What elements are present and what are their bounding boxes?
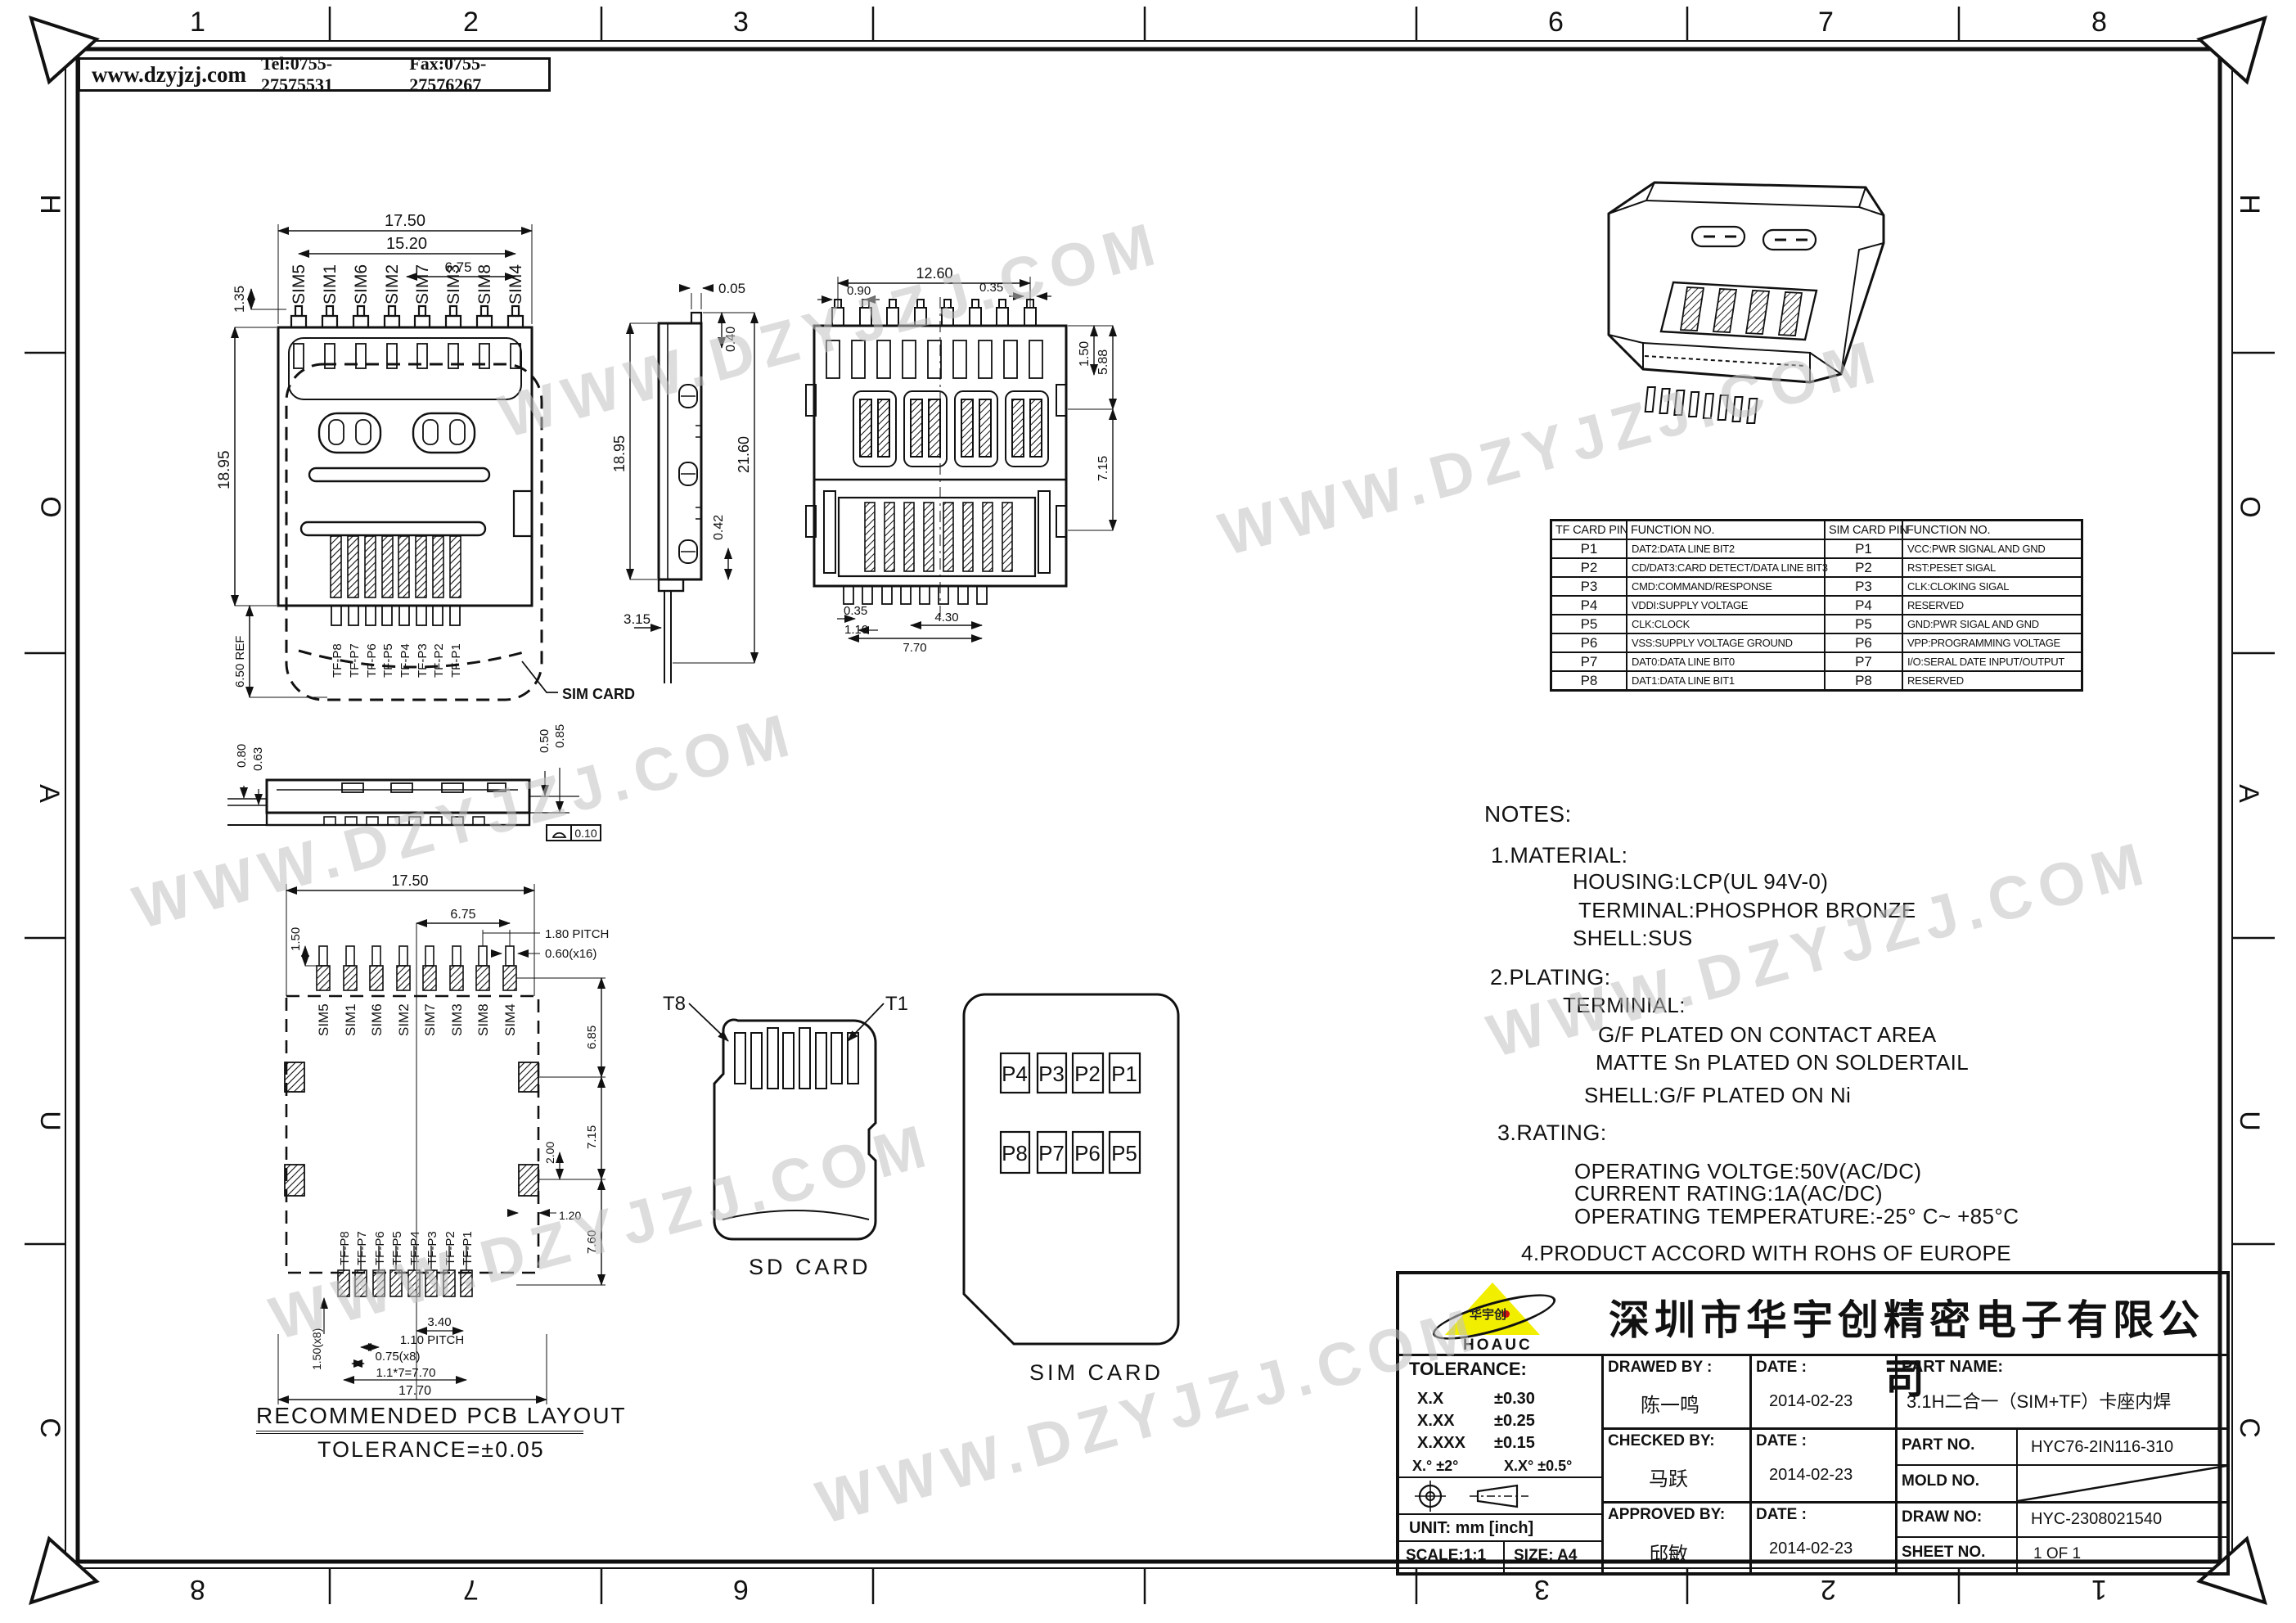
pin-label-sim: SIM3 (444, 264, 463, 304)
sim-pad-label: P8 (1002, 1141, 1028, 1165)
tolerance-row-value: ±0.15 (1494, 1434, 1535, 1453)
tf-pin: P3 (1551, 577, 1627, 596)
dim-label: 1.10 (844, 623, 868, 637)
tolerance-row-value: ±0.25 (1494, 1412, 1535, 1431)
tolerance-angle: X.° ±2° (1412, 1458, 1458, 1475)
zone-number-bottom: 6 (733, 1573, 749, 1605)
dim-label: 1.1*7=7.70 (376, 1366, 436, 1380)
dim-label: 1.50 (289, 927, 303, 951)
sim-pin: P5 (1825, 615, 1902, 633)
pin-label-sim: SIM7 (413, 264, 432, 304)
view-sim-card: P4 P3 P2 P1 P8 P7 P6 P5 (956, 986, 1201, 1371)
draw-no-value: HYC-2308021540 (2031, 1510, 2162, 1529)
note-line: CURRENT RATING:1A(AC/DC) (1574, 1181, 1883, 1206)
note-line: TERMINIAL: (1563, 993, 1686, 1018)
note-line: SHELL:G/F PLATED ON Ni (1584, 1083, 1851, 1108)
note-line: HOUSING:LCP(UL 94V-0) (1573, 869, 1828, 895)
sim-pad-label: P7 (1038, 1141, 1065, 1165)
checked-by-name: 马跃 (1649, 1463, 1688, 1491)
title-block: 华宇创 HOAUC 深圳市华宇创精密电子有限公司 TOLERANCE: X.X … (1396, 1271, 2230, 1576)
zone-number-top: 1 (190, 7, 205, 38)
website: www.dzyjzj.com (92, 62, 246, 88)
dim-label: 0.05 (718, 281, 745, 296)
projection-symbol-target (1414, 1480, 1447, 1513)
notes-title: NOTES: (1484, 801, 1572, 827)
sim-function: I/O:SERAL DATE INPUT/OUTPUT (1902, 652, 2082, 671)
tolerance-row-label: X.XX (1417, 1412, 1455, 1431)
sim-function: RST:PESET SIGAL (1902, 558, 2082, 577)
pin-label-tf: TF-P8 (338, 1231, 352, 1265)
dim-label: 7.70 (903, 641, 926, 655)
pin-label-tf: TF-P7 (355, 1231, 369, 1265)
sim-function: GND:PWR SIGAL AND GND (1902, 615, 2082, 633)
note-line: SHELL:SUS (1573, 926, 1693, 951)
pin-label-sim: SIM4 (506, 264, 525, 304)
note-line: OPERATING TEMPERATURE:-25° C~ +85°C (1574, 1204, 2019, 1229)
pin-label-tf: TF-P4 (408, 1231, 422, 1265)
date-label: DATE : (1756, 1432, 1807, 1450)
dim-label: 0.75(x8) (375, 1350, 420, 1364)
fax: Fax:0755-27576267 (409, 53, 548, 96)
sim-pin: P2 (1825, 558, 1902, 577)
approved-date: 2014-02-23 (1769, 1540, 1853, 1558)
dim-label: 0.80 (235, 744, 249, 768)
zone-letter-right: H (2233, 194, 2265, 214)
mold-no-label: MOLD NO. (1902, 1472, 1979, 1490)
tolerance-angle: X.X° ±0.5° (1504, 1458, 1572, 1475)
drawing-sheet: 1 2 3 6 7 8 8 7 6 3 2 1 H O A U C H O A … (0, 0, 2296, 1623)
tf-pin: P6 (1551, 633, 1627, 652)
pin-label-tf: TF-P6 (373, 1231, 387, 1265)
note-line: G/F PLATED ON CONTACT AREA (1598, 1022, 1936, 1048)
tf-function: DAT0:DATA LINE BIT0 (1627, 652, 1825, 671)
pin-label-tf: TF-P1 (461, 1231, 475, 1265)
sim-pad-label: P2 (1074, 1062, 1101, 1086)
mold-no-diagonal (2018, 1466, 2226, 1501)
pin-label-sim: SIM5 (290, 264, 308, 304)
approved-by-label: APPROVED BY: (1608, 1506, 1725, 1524)
pin-label-sim: SIM5 (316, 1003, 331, 1036)
zone-letter-left: C (34, 1418, 65, 1438)
sim-table-header: SIM CARD PIN (1825, 521, 1902, 539)
dim-label: 4.30 (934, 611, 958, 624)
flatness-value: 0.10 (574, 827, 597, 840)
pin-label-tf: TF-P2 (432, 643, 446, 678)
tf-function: CLK:CLOCK (1627, 615, 1825, 633)
pin-label-tf: TF-P3 (425, 1231, 439, 1265)
tf-function: CD/DAT3:CARD DETECT/DATA LINE BIT3 (1627, 558, 1825, 577)
zone-number-top: 3 (733, 7, 749, 38)
view-isometric (1596, 168, 1923, 446)
dim-label: 0.63 (251, 747, 265, 771)
note-line: TERMINAL:PHOSPHOR BRONZE (1578, 898, 1916, 923)
zone-letter-right: U (2233, 1111, 2265, 1131)
dim-label: 3.40 (427, 1315, 451, 1329)
dim-label: 0.35 (979, 281, 1003, 295)
view-pcb-layout: 17.50 1.50 6.75 1.80 PITCH 0.60(x16) 6.8… (245, 876, 622, 1408)
telephone: Tel:0755-27575531 (261, 53, 394, 96)
dim-label: 0.85 (553, 724, 567, 748)
pcb-layout-title: RECOMMENDED PCB LAYOUT (256, 1403, 583, 1434)
dim-label: 0.50 (538, 729, 551, 753)
dim-label: 7.60 (585, 1230, 599, 1254)
sim-function: VPP:PROGRAMMING VOLTAGE (1902, 633, 2082, 652)
zone-number-top: 6 (1548, 7, 1564, 38)
dim-label: 17.70 (398, 1384, 431, 1398)
pcb-layout-tolerance: TOLERANCE=±0.05 (317, 1437, 545, 1463)
tf-function: DAT2:DATA LINE BIT2 (1627, 539, 1825, 558)
dim-label: 1.50 (1078, 341, 1092, 367)
sim-card-callout: SIM CARD (562, 686, 635, 702)
zone-letter-left: O (34, 496, 66, 517)
draw-no-label: DRAW NO: (1902, 1508, 1982, 1526)
pin-label-tf: TF-P1 (449, 643, 463, 678)
pin-function-tables: TF CARD PIN FUNCTION NO. SIM CARD PIN FU… (1550, 519, 2083, 692)
view-side: 0.05 0.40 18.95 21.60 0.42 3.15 (614, 270, 802, 688)
zone-letter-right: C (2233, 1418, 2265, 1438)
tolerance-title: TOLERANCE: (1409, 1359, 1527, 1380)
dim-label: 6.75 (450, 908, 475, 922)
view-front: 12.60 0.90 0.35 1.50 5.88 7.15 0.35 1.10… (806, 260, 1133, 661)
dim-label: 0.60(x16) (545, 947, 597, 961)
sim-function: CLK:CLOKING SIGAL (1902, 577, 2082, 596)
dim-label: 3.15 (624, 611, 651, 627)
sim-pad-label: P4 (1002, 1062, 1028, 1086)
sd-t1-label: T1 (885, 993, 908, 1015)
dim-label: 1.35 (232, 286, 247, 313)
tolerance-row-label: X.X (1417, 1390, 1443, 1409)
dim-label: 18.95 (611, 435, 628, 472)
sim-pad-label: P3 (1038, 1062, 1065, 1086)
zone-letter-right: A (2232, 784, 2264, 803)
note-line: 1.MATERIAL: (1491, 843, 1627, 868)
pin-label-sim: SIM8 (475, 1003, 491, 1036)
dim-label: 21.60 (736, 436, 752, 473)
header-contact-box: www.dzyjzj.com Tel:0755-27575531 Fax:075… (78, 57, 551, 92)
tf-table-header: TF CARD PIN (1551, 521, 1627, 539)
tolerance-row-value: ±0.30 (1494, 1390, 1535, 1409)
tf-function: VDDI:SUPPLY VOLTAGE (1627, 596, 1825, 615)
sd-t8-label: T8 (663, 993, 686, 1015)
sim-pin: P1 (1825, 539, 1902, 558)
sim-function: RESERVED (1902, 596, 2082, 615)
tf-function: VSS:SUPPLY VOLTAGE GROUND (1627, 633, 1825, 652)
sim-pad-label: P1 (1111, 1062, 1137, 1086)
sim-pad-label: P6 (1074, 1141, 1101, 1165)
dim-label: 0.40 (724, 327, 738, 352)
tf-pin: P7 (1551, 652, 1627, 671)
zone-letter-right: O (2234, 496, 2266, 517)
pin-label-sim: SIM1 (343, 1003, 358, 1036)
part-no-label: PART NO. (1902, 1436, 1974, 1454)
sim-pad-label: P5 (1111, 1141, 1137, 1165)
sd-card-caption: SD CARD (749, 1255, 871, 1280)
pin-label-sim: SIM7 (422, 1003, 438, 1036)
approved-by-name: 邱敏 (1649, 1538, 1688, 1567)
dim-label: 5.88 (1096, 349, 1110, 375)
pin-label-sim: SIM2 (396, 1003, 412, 1036)
pin-label-sim: SIM6 (352, 264, 371, 304)
projection-symbol-cone (1470, 1484, 1528, 1508)
sim-pin: P3 (1825, 577, 1902, 596)
sim-pin: P8 (1825, 671, 1902, 690)
zone-number-bottom: 2 (1821, 1573, 1836, 1605)
logo-text: 华宇创 (1470, 1305, 1506, 1323)
pin-label-tf: TF-P3 (416, 643, 430, 678)
pin-label-sim: SIM8 (475, 264, 494, 304)
sim-pin: P6 (1825, 633, 1902, 652)
sim-pin: P4 (1825, 596, 1902, 615)
sim-pin: P7 (1825, 652, 1902, 671)
dim-label: 2.00 (543, 1142, 556, 1164)
unit-label: UNIT: mm [inch] (1409, 1519, 1533, 1538)
dim-label: 0.42 (712, 515, 726, 540)
note-line: MATTE Sn PLATED ON SOLDERTAIL (1596, 1050, 1969, 1075)
tf-function: DAT1:DATA LINE BIT1 (1627, 671, 1825, 690)
dim-label: 7.15 (585, 1125, 599, 1149)
sheet-no-value: 1 OF 1 (2033, 1545, 2081, 1563)
pin-label-tf: TF-P7 (348, 643, 362, 678)
zone-number-top: 2 (463, 7, 479, 38)
part-name-value: 3.1H二合一（SIM+TF）卡座内焊 (1907, 1387, 2171, 1413)
pin-label-sim: SIM4 (502, 1003, 518, 1036)
note-line: 3.RATING: (1497, 1120, 1607, 1146)
pin-label-tf: TF-P2 (443, 1231, 457, 1265)
sim-function: RESERVED (1902, 671, 2082, 690)
tf-pin: P5 (1551, 615, 1627, 633)
dim-label: 1.10 PITCH (400, 1333, 464, 1347)
sim-card-caption: SIM CARD (1029, 1360, 1164, 1386)
drawn-date: 2014-02-23 (1769, 1392, 1853, 1411)
size-label: SIZE: A4 (1514, 1547, 1577, 1565)
tf-pin: P4 (1551, 596, 1627, 615)
dim-label: 12.60 (916, 265, 952, 282)
view-top: 17.50 15.20 6.75 1.35 18.95 6.50 REF SIM… (205, 205, 622, 810)
pin-label-tf: TF-P6 (365, 643, 379, 678)
zone-number-top: 8 (2091, 7, 2107, 38)
dim-label: 17.50 (391, 872, 428, 889)
part-no-value: HYC76-2IN116-310 (2031, 1438, 2173, 1457)
dim-label: 0.35 (844, 604, 867, 618)
pin-label-tf: TF-P8 (331, 643, 344, 678)
pin-label-sim: SIM6 (369, 1003, 385, 1036)
drawn-by-label: DRAWED BY : (1608, 1359, 1712, 1377)
dim-label: 17.50 (385, 212, 425, 230)
zone-number-bottom: 3 (1534, 1573, 1550, 1605)
dim-label: 6.85 (585, 1026, 599, 1049)
dim-label: 1.20 (559, 1209, 581, 1222)
logo-subtext: HOAUC (1463, 1337, 1533, 1355)
view-sd-card: T8 T1 (653, 976, 923, 1287)
pin-label-tf: TF-P5 (381, 643, 395, 678)
note-line: 2.PLATING: (1490, 965, 1611, 990)
dim-label: 0.90 (847, 284, 871, 298)
date-label: DATE : (1756, 1359, 1807, 1377)
pin-label-tf: TF-P5 (390, 1231, 404, 1265)
scale-label: SCALE:1:1 (1406, 1547, 1486, 1565)
view-profile: 0.80 0.63 0.50 0.85 0.10 (227, 720, 612, 851)
sim-function: VCC:PWR SIGNAL AND GND (1902, 539, 2082, 558)
note-line: 4.PRODUCT ACCORD WITH ROHS OF EUROPE (1521, 1241, 2011, 1266)
dim-label: 1.50(x8) (310, 1328, 323, 1370)
date-label: DATE : (1756, 1506, 1807, 1524)
checked-date: 2014-02-23 (1769, 1466, 1853, 1485)
zone-letter-left: U (34, 1111, 65, 1131)
zone-number-top: 7 (1818, 7, 1834, 38)
checked-by-label: CHECKED BY: (1608, 1432, 1715, 1450)
tf-pin: P1 (1551, 539, 1627, 558)
part-name-label: PART NAME: (1902, 1358, 2003, 1377)
tf-pin: P2 (1551, 558, 1627, 577)
sim-table-header: FUNCTION NO. (1902, 521, 2082, 539)
dim-label: 15.20 (386, 235, 427, 253)
pin-label-sim: SIM3 (449, 1003, 465, 1036)
zone-number-bottom: 1 (2091, 1573, 2107, 1605)
zone-letter-left: H (34, 194, 65, 214)
dim-label: 1.80 PITCH (545, 927, 609, 941)
zone-number-bottom: 8 (190, 1573, 205, 1605)
pin-label-sim: SIM1 (321, 264, 340, 304)
company-logo: 华宇创 HOAUC (1430, 1278, 1569, 1353)
dim-label: 6.50 REF (233, 636, 247, 688)
tf-pin: P8 (1551, 671, 1627, 690)
dim-label: 18.95 (216, 450, 233, 489)
dim-label: 7.15 (1096, 456, 1110, 481)
tf-table-header: FUNCTION NO. (1627, 521, 1825, 539)
pin-label-sim: SIM2 (383, 264, 402, 304)
zone-number-bottom: 7 (463, 1573, 479, 1605)
tolerance-row-label: X.XXX (1417, 1434, 1465, 1453)
tf-function: CMD:COMMAND/RESPONSE (1627, 577, 1825, 596)
drawn-by-name: 陈一鸣 (1641, 1389, 1699, 1418)
pin-label-tf: TF-P4 (398, 643, 412, 678)
zone-letter-left: A (33, 784, 65, 803)
sheet-no-label: SHEET NO. (1902, 1544, 1985, 1562)
